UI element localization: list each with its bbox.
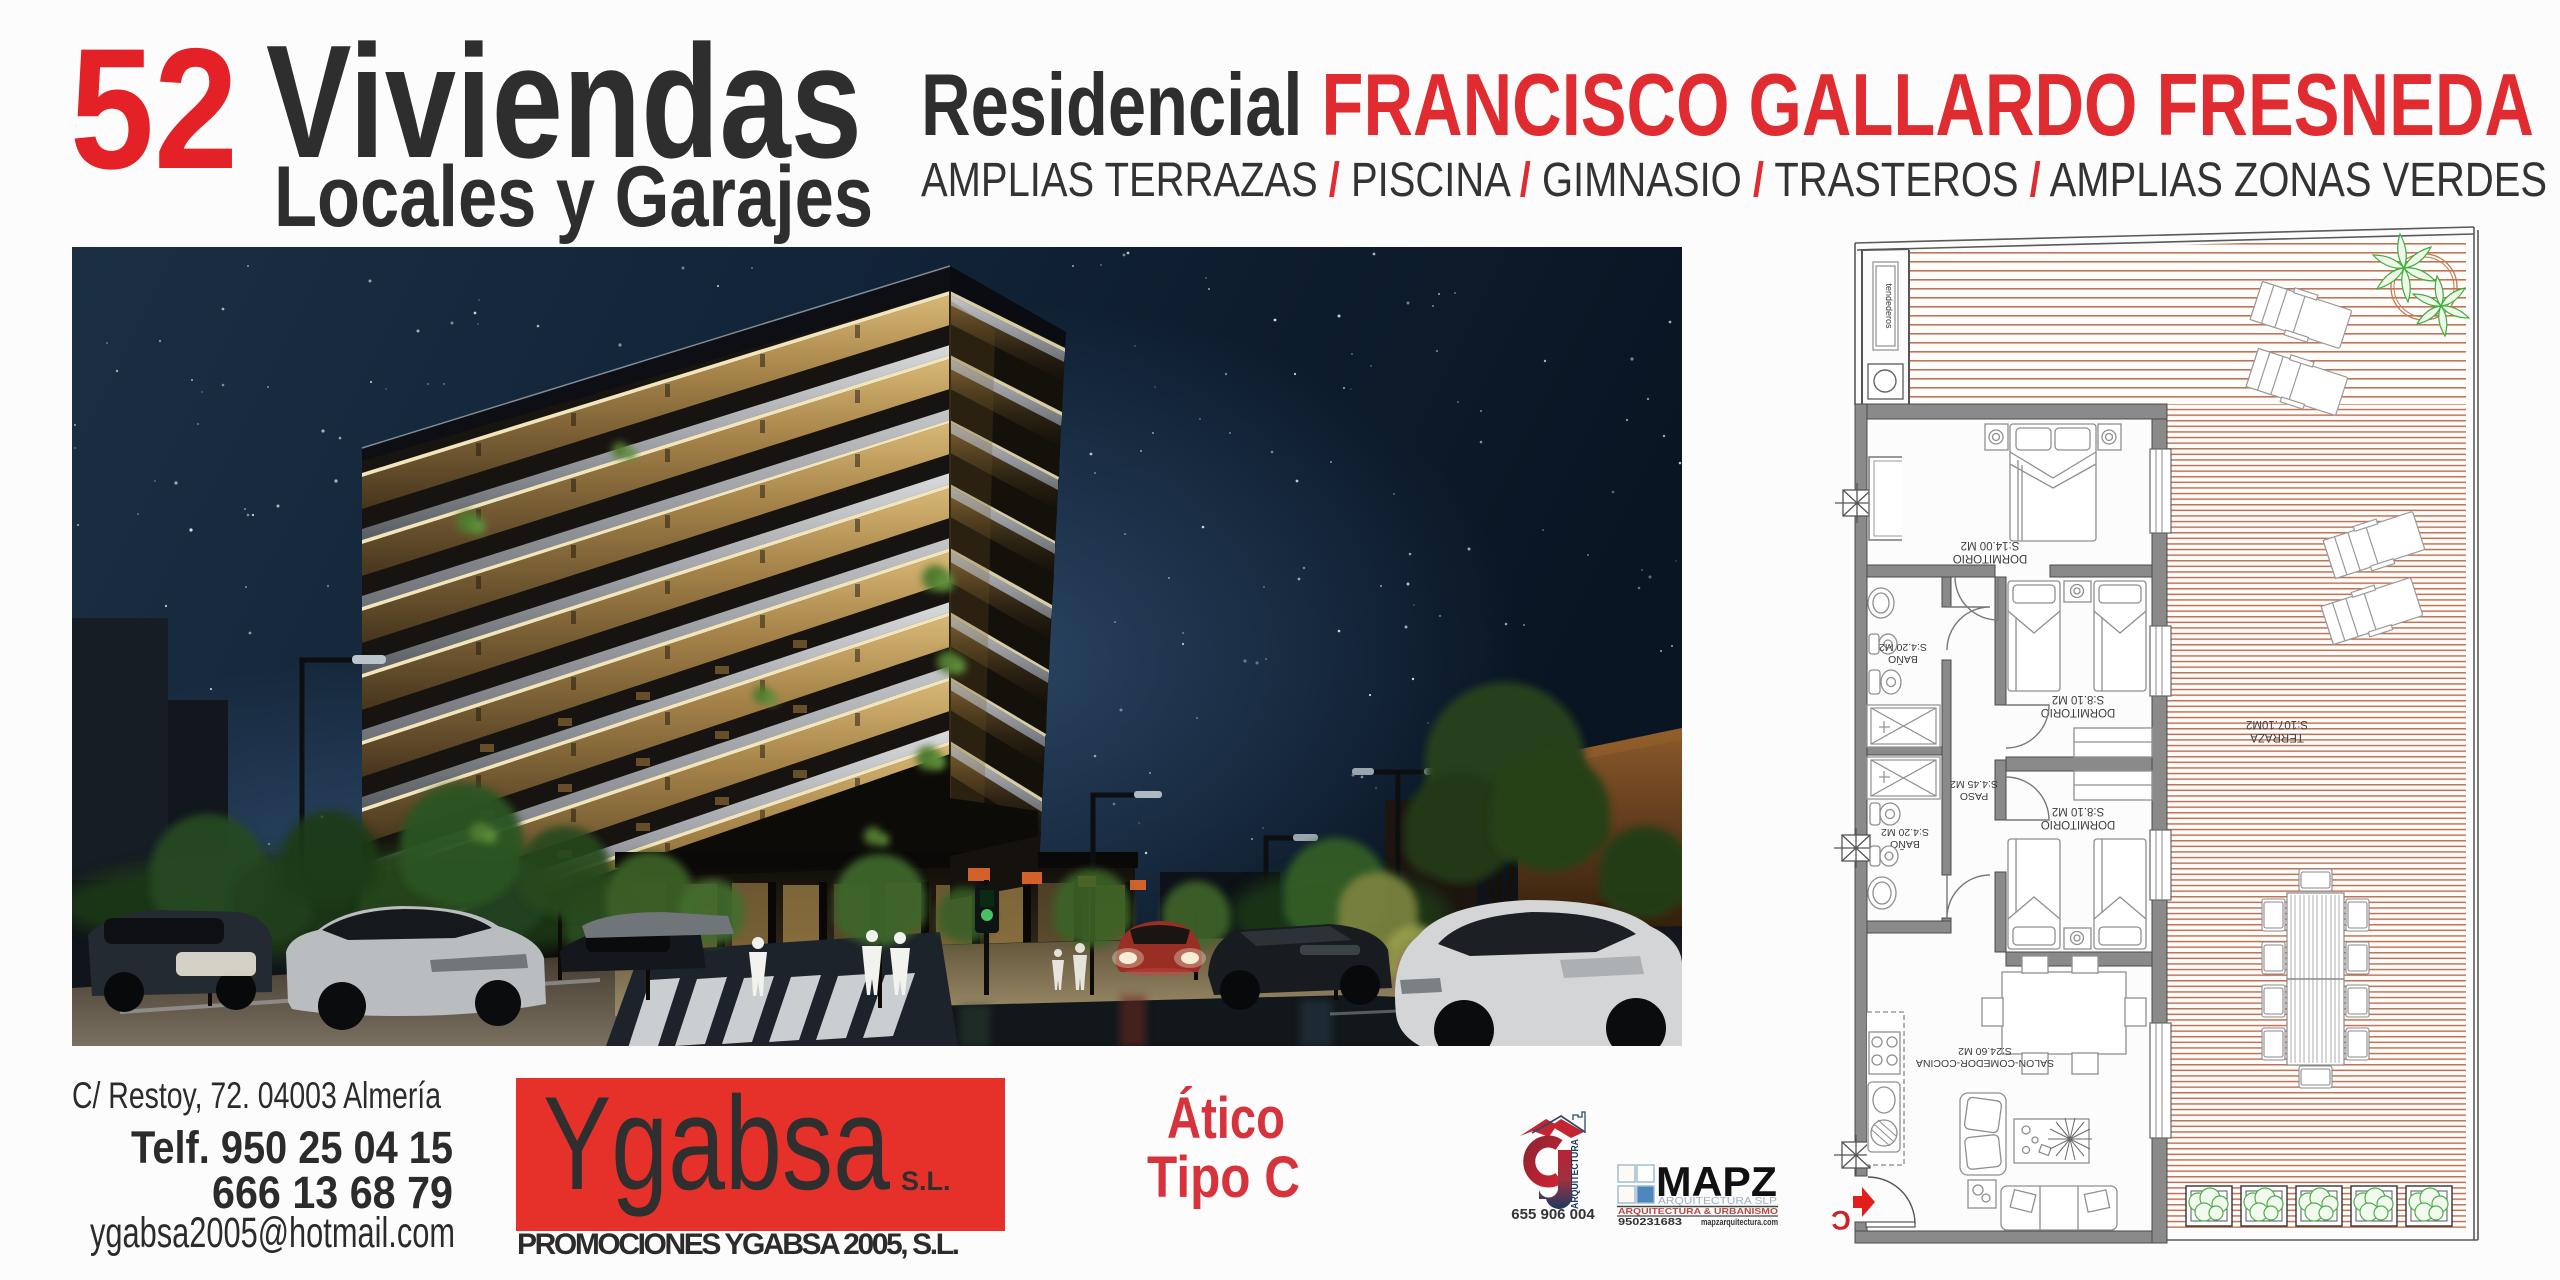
svg-text:S:8.10 M2: S:8.10 M2: [2052, 693, 2104, 705]
svg-text:DORMITORIO: DORMITORIO: [1953, 552, 2028, 564]
svg-text:C: C: [1831, 1205, 1851, 1235]
svg-text:PROMOCIONES YGABSA 2005, S.L.: PROMOCIONES YGABSA 2005, S.L.: [517, 1228, 960, 1261]
svg-text:tendederos: tendederos: [1884, 283, 1894, 329]
svg-text:PASO: PASO: [1960, 790, 1988, 802]
svg-text:ARQUITECTURA: ARQUITECTURA: [1569, 1139, 1581, 1209]
svg-text:S:14.00 M2: S:14.00 M2: [1961, 539, 2020, 551]
svg-text:ygabsa2005@hotmail.com: ygabsa2005@hotmail.com: [90, 1209, 455, 1257]
svg-text:S:4.20 M2: S:4.20 M2: [1879, 641, 1927, 653]
svg-text:655 906 004: 655 906 004: [1511, 1206, 1595, 1223]
svg-text:S:4.20 M2: S:4.20 M2: [1881, 826, 1929, 838]
svg-text:mapzarquitectura.com: mapzarquitectura.com: [1701, 1217, 1778, 1228]
svg-text:AMPLIAS TERRAZAS / PISCINA / G: AMPLIAS TERRAZAS / PISCINA / GIMNASIO / …: [921, 154, 2547, 207]
svg-text:Residencial FRANCISCO GALLARDO: Residencial FRANCISCO GALLARDO FRESNEDA: [921, 55, 2534, 154]
svg-text:TERRAZA: TERRAZA: [2250, 731, 2304, 743]
svg-text:950231683: 950231683: [1618, 1216, 1682, 1228]
svg-text:Locales y Garajes: Locales y Garajes: [274, 149, 873, 245]
svg-text:S:24.60 M2: S:24.60 M2: [1958, 1045, 2012, 1057]
svg-text:ARQUITECTURA & URBANISMO: ARQUITECTURA & URBANISMO: [1618, 1206, 1778, 1216]
svg-text:DORMITORIO: DORMITORIO: [2041, 818, 2116, 830]
svg-text:SALON-COMEDOR-COCINA: SALON-COMEDOR-COCINA: [1916, 1057, 2054, 1069]
svg-text:BAÑO: BAÑO: [1888, 653, 1918, 666]
svg-text:S:107.10M2: S:107.10M2: [2246, 718, 2308, 730]
svg-text:Ático: Ático: [1167, 1086, 1285, 1151]
svg-text:Telf. 950 25 04 15: Telf. 950 25 04 15: [131, 1122, 453, 1173]
svg-text:Tipo C: Tipo C: [1147, 1145, 1300, 1210]
svg-text:C/ Restoy, 72. 04003 Almería: C/ Restoy, 72. 04003 Almería: [72, 1075, 441, 1116]
svg-text:52: 52: [70, 13, 238, 205]
svg-text:DORMITORIO: DORMITORIO: [2041, 706, 2116, 718]
svg-text:S:4.45 M2: S:4.45 M2: [1950, 778, 1998, 790]
svg-text:S:8.10 M2: S:8.10 M2: [2052, 805, 2104, 817]
svg-text:Ygabsa: Ygabsa: [543, 1070, 890, 1218]
svg-text:S.L.: S.L.: [901, 1166, 951, 1196]
